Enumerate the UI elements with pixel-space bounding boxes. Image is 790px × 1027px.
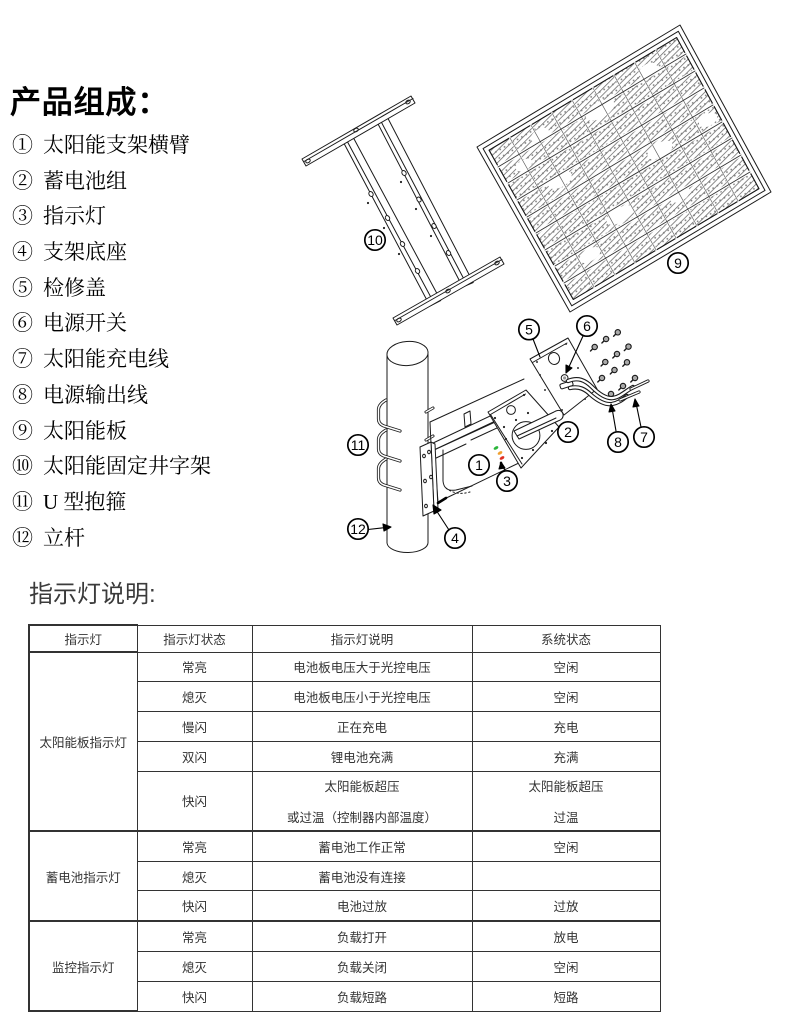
svg-text:2: 2 [564,424,572,440]
svg-text:7: 7 [640,429,648,445]
svg-text:8: 8 [614,434,622,450]
svg-text:1: 1 [475,457,483,473]
svg-text:5: 5 [525,322,533,338]
svg-text:9: 9 [674,255,682,271]
svg-text:11: 11 [351,437,366,453]
svg-text:4: 4 [451,530,459,546]
svg-text:10: 10 [367,232,383,248]
svg-text:3: 3 [503,473,511,489]
svg-text:6: 6 [583,318,591,334]
svg-text:12: 12 [350,521,366,537]
